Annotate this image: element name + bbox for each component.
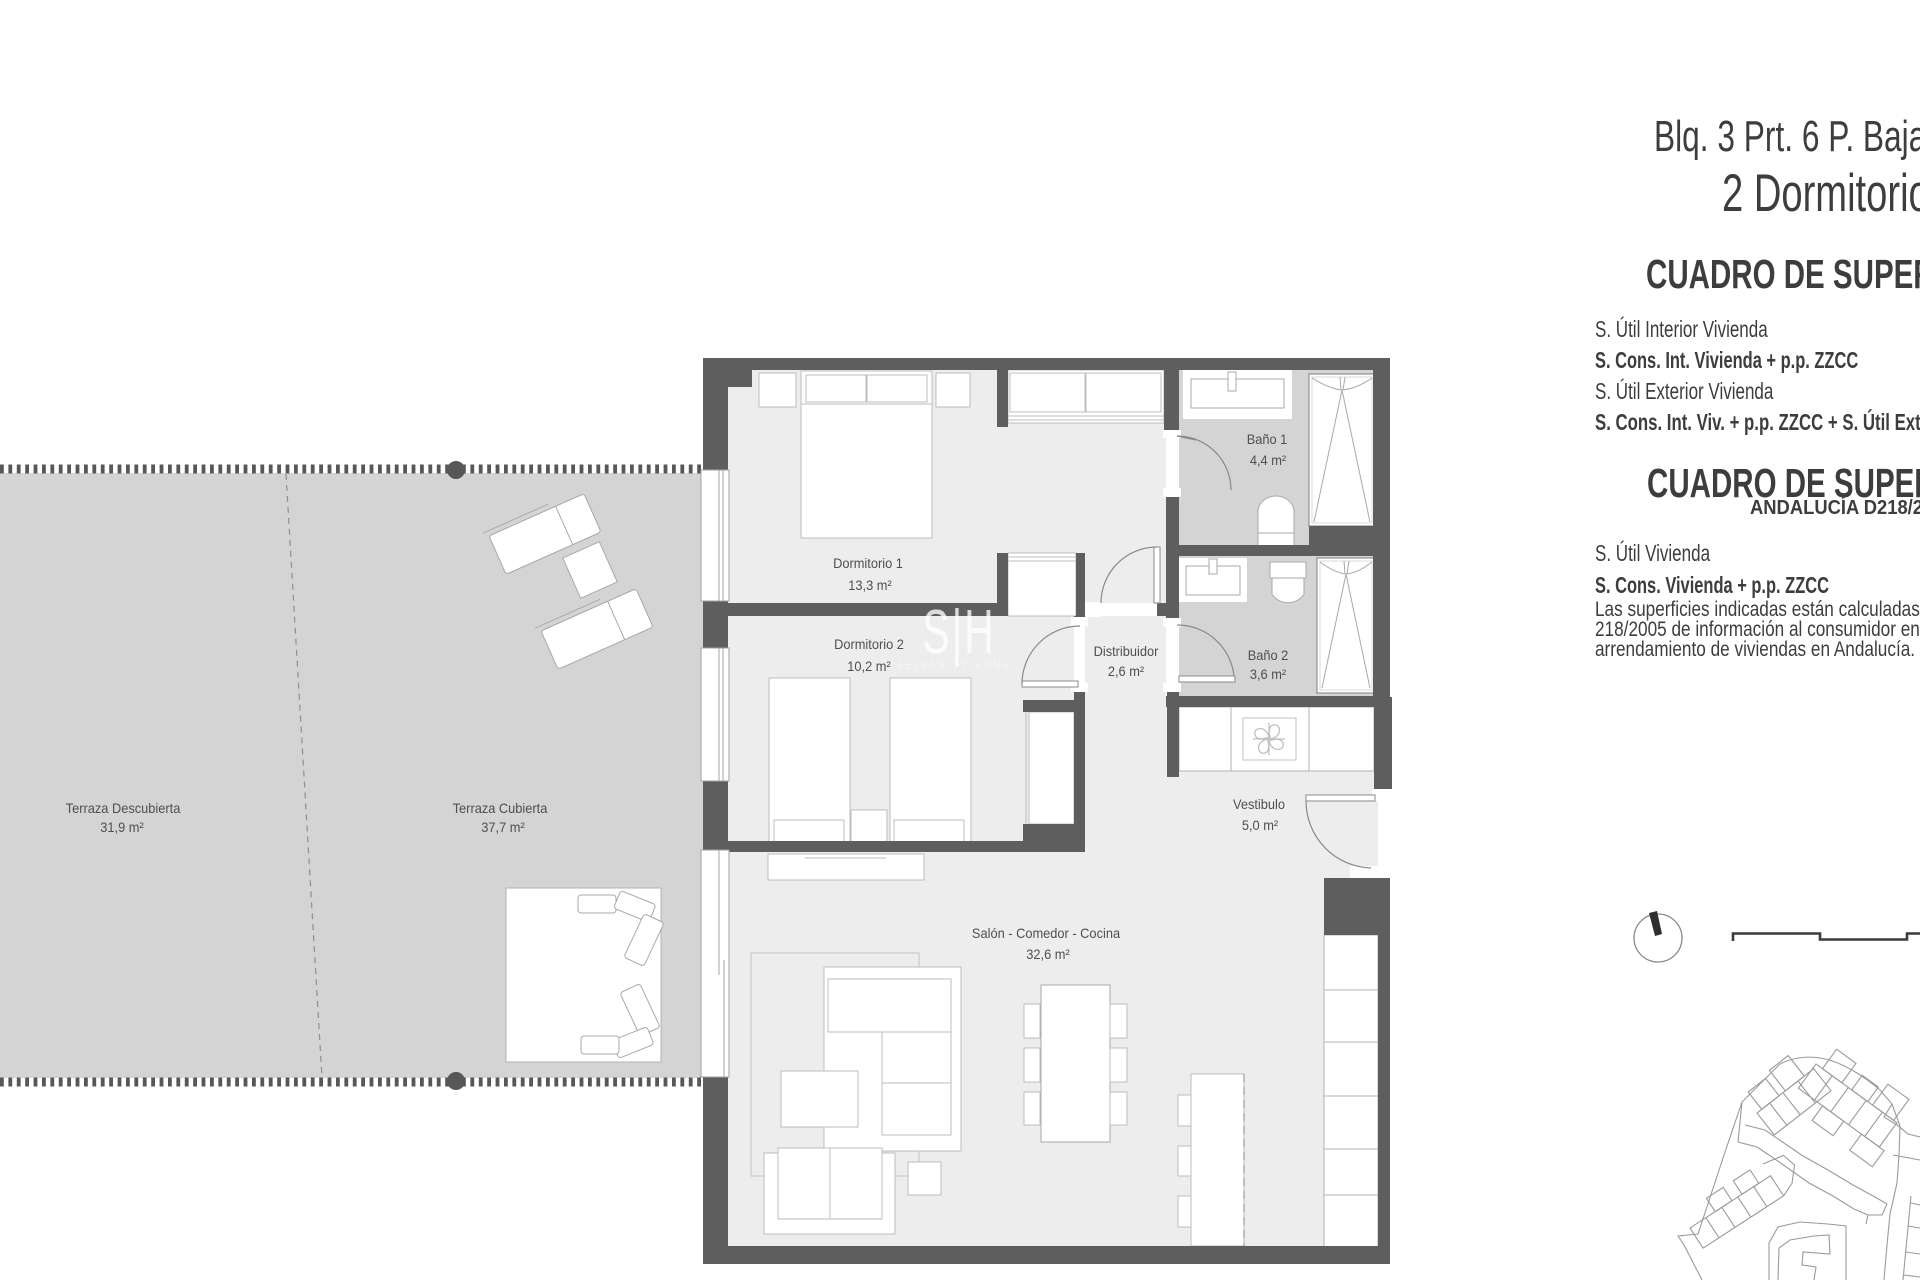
svg-text:13,3 m²: 13,3 m² xyxy=(848,578,892,593)
svg-text:2,6 m²: 2,6 m² xyxy=(1108,664,1145,679)
svg-text:Blq. 3 Prt. 6 P. Baja: Blq. 3 Prt. 6 P. Baja xyxy=(1654,112,1920,161)
svg-text:SELVARITY HOME: SELVARITY HOME xyxy=(898,660,1013,673)
svg-text:3,6 m²: 3,6 m² xyxy=(1250,667,1287,682)
svg-text:5,0 m²: 5,0 m² xyxy=(1242,818,1279,833)
svg-text:S. Cons. Vivienda + p.p. ZZCC: S. Cons. Vivienda + p.p. ZZCC xyxy=(1595,573,1829,598)
svg-text:Terraza Descubierta: Terraza Descubierta xyxy=(66,801,181,816)
svg-text:31,9 m²: 31,9 m² xyxy=(100,820,144,835)
svg-text:S. Útil Vivienda: S. Útil Vivienda xyxy=(1595,541,1711,567)
svg-text:S. Cons. Int. Vivienda + p.p.: S. Cons. Int. Vivienda + p.p. ZZCC xyxy=(1595,348,1858,373)
svg-text:CUADRO DE SUPERFICIES: CUADRO DE SUPERFICIES xyxy=(1646,251,1920,297)
svg-text:arrendamiento de viviendas en: arrendamiento de viviendas en Andalucía. xyxy=(1595,637,1915,661)
svg-text:2 Dormitorios: 2 Dormitorios xyxy=(1722,163,1920,223)
svg-text:Vestibulo: Vestibulo xyxy=(1233,797,1285,812)
svg-text:S|H: S|H xyxy=(922,598,995,668)
svg-text:S. Útil Exterior Vivienda: S. Útil Exterior Vivienda xyxy=(1595,379,1774,405)
svg-text:S. Cons. Int. Viv. + p.p. ZZCC: S. Cons. Int. Viv. + p.p. ZZCC + S. Útil… xyxy=(1595,408,1920,435)
svg-text:Terraza Cubierta: Terraza Cubierta xyxy=(453,801,548,816)
svg-text:Baño 2: Baño 2 xyxy=(1248,648,1289,663)
svg-text:Distribuidor: Distribuidor xyxy=(1094,644,1159,659)
svg-text:ANDALUCÍA D218/2005: ANDALUCÍA D218/2005 xyxy=(1750,496,1920,519)
svg-text:Salón - Comedor - Cocina: Salón - Comedor - Cocina xyxy=(972,926,1121,941)
svg-text:S. Útil Interior Vivienda: S. Útil Interior Vivienda xyxy=(1595,317,1768,343)
svg-text:37,7 m²: 37,7 m² xyxy=(481,820,525,835)
svg-text:Dormitorio 2: Dormitorio 2 xyxy=(834,637,904,652)
svg-text:32,6 m²: 32,6 m² xyxy=(1026,947,1070,962)
svg-text:10,2 m²: 10,2 m² xyxy=(847,659,891,674)
svg-text:Baño 1: Baño 1 xyxy=(1247,432,1288,447)
svg-text:Dormitorio 1: Dormitorio 1 xyxy=(833,556,903,571)
svg-text:4,4 m²: 4,4 m² xyxy=(1250,453,1287,468)
